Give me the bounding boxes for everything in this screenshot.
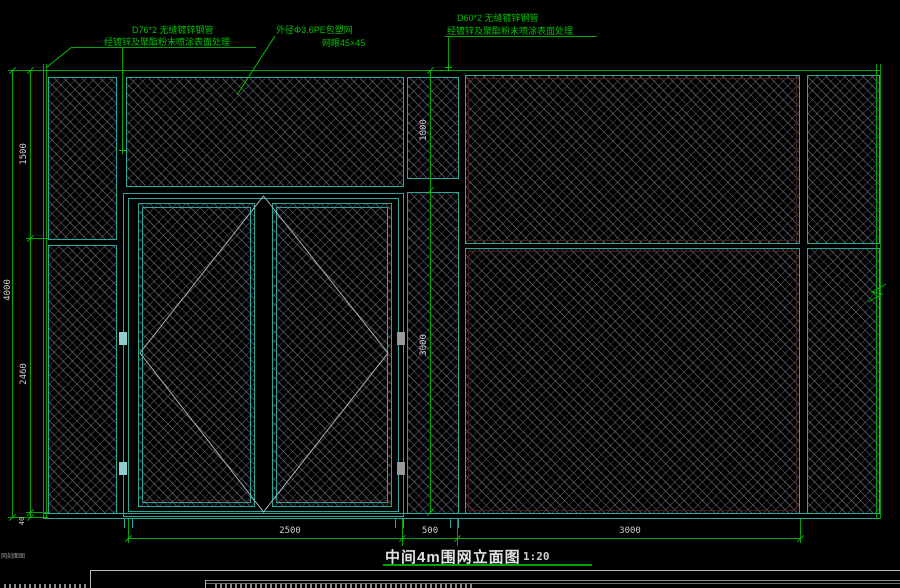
right-pipe-annotation-line2: 经镀锌及聚酯粉末喷涂表面处理: [447, 24, 573, 37]
gate-left-leaf: [138, 203, 255, 507]
mesh-spec-annotation-line1: 外径Φ3.6PE包塑网: [276, 23, 353, 36]
dim-label-2460: 2460: [19, 363, 29, 385]
base-rail-bottom: [43, 518, 880, 519]
left-panel-upper-mesh: [48, 77, 117, 240]
table-border-line: [205, 580, 900, 581]
annotation-leader-right: [448, 36, 449, 67]
leaf-bottom-accent-line: [275, 500, 387, 501]
left-pipe-annotation-line2: 经镀锌及聚酯粉末喷涂表面处理: [104, 35, 230, 48]
dim-label-3000-bottom: 3000: [619, 526, 641, 536]
table-border-line: [205, 580, 206, 588]
dim-label-3000-vertical: 3000: [419, 334, 429, 356]
dim-line-center-vertical: [430, 70, 431, 512]
table-border-line: [90, 570, 91, 588]
top-rail-line: [8, 70, 880, 71]
mesh-spec-annotation-line2: 网眼45×45: [322, 36, 365, 49]
truncated-text-fragment: [215, 584, 475, 588]
title-underline: [383, 564, 592, 566]
leader-cross-marker: [448, 64, 449, 71]
leaf-bottom-accent-line: [141, 500, 250, 501]
left-boundary-line: [43, 64, 44, 519]
drawing-scale: 1:20: [523, 550, 550, 563]
far-right-panel-lower-mesh: [807, 248, 880, 514]
annotation-leader-left: [122, 47, 123, 150]
dim-label-1500: 1500: [19, 143, 29, 165]
table-border-line: [90, 570, 900, 571]
gate-hinge-icon: [119, 462, 127, 475]
gate-hinge-icon: [119, 332, 127, 345]
dim-extension: [402, 519, 403, 546]
leader-diagonal-left: [47, 47, 72, 67]
gate-right-leaf: [272, 203, 392, 507]
cad-drawing-canvas: D76*2 无缝镀锌钢管 经镀锌及聚酯粉末喷涂表面处理 外径Φ3.6PE包塑网 …: [0, 0, 900, 588]
right-panel-upper-mesh: [465, 75, 800, 244]
dim-label-1000: 1000: [419, 119, 429, 141]
base-rail-top: [43, 513, 880, 514]
left-panel-lower-mesh: [48, 245, 117, 514]
left-boundary-line: [46, 64, 47, 519]
right-pipe-annotation-line1: D60*2 无缝镀锌钢管: [457, 11, 539, 24]
dim-label-2500: 2500: [279, 526, 301, 536]
dim-label-4000: 4000: [3, 279, 13, 301]
post-column-lower-mesh: [407, 192, 459, 514]
top-band-mesh: [126, 77, 404, 187]
dim-line-bottom: [128, 538, 800, 539]
truncated-text-fragment: [4, 584, 86, 588]
right-panel-lower-mesh: [465, 248, 800, 514]
corner-label: 网剖面图: [1, 551, 25, 560]
dim-label-40: 40: [18, 517, 26, 525]
dim-label-500: 500: [422, 526, 438, 536]
gate-hinge-icon: [397, 332, 405, 345]
far-right-panel-upper-mesh: [807, 75, 880, 244]
leader-cross-marker: [122, 147, 123, 154]
dim-extension: [457, 519, 458, 546]
gate-hinge-icon: [397, 462, 405, 475]
dim-line-left-segments: [30, 70, 31, 517]
post-column-upper-mesh: [407, 77, 459, 179]
right-boundary-line: [876, 64, 877, 519]
right-boundary-line: [880, 64, 881, 519]
